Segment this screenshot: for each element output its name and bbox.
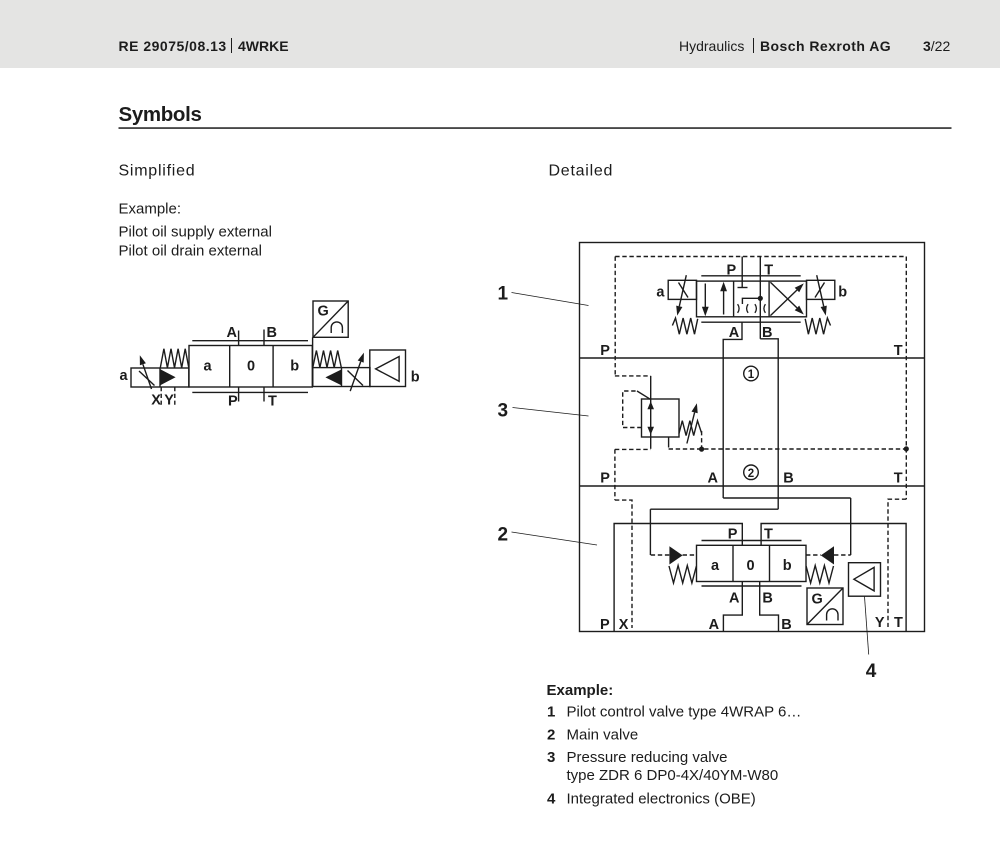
svg-text:Example:: Example: [547,682,614,699]
svg-text:2: 2 [748,468,754,480]
svg-text:0: 0 [247,359,255,375]
svg-text:P: P [600,471,610,487]
svg-text:P: P [727,263,737,279]
svg-text:Y: Y [164,393,174,409]
svg-text:b: b [290,359,299,375]
svg-text:Bosch Rexroth AG: Bosch Rexroth AG [760,38,891,54]
svg-text:X: X [151,393,161,409]
svg-text:1: 1 [498,284,509,305]
svg-text:T: T [268,394,277,410]
svg-text:b: b [411,370,420,386]
svg-text:a: a [711,558,720,574]
svg-text:3/22: 3/22 [923,38,950,54]
svg-text:A: A [729,325,740,341]
svg-text:a: a [656,285,665,301]
svg-text:P: P [728,527,738,543]
svg-text:A: A [729,591,740,607]
svg-text:G: G [318,304,329,320]
svg-text:4: 4 [547,791,556,808]
svg-text:2: 2 [498,525,509,546]
svg-text:P: P [228,394,238,410]
svg-text:a: a [204,359,213,375]
svg-text:B: B [762,591,772,607]
svg-text:T: T [894,615,903,631]
svg-text:T: T [894,471,903,487]
svg-text:Detailed: Detailed [549,163,614,180]
svg-text:A: A [709,617,720,633]
svg-text:T: T [894,343,903,359]
svg-text:1: 1 [547,704,555,721]
svg-text:Y: Y [875,615,885,631]
svg-text:Pilot oil drain external: Pilot oil drain external [119,243,262,260]
svg-text:A: A [227,325,238,341]
svg-text:T: T [764,527,773,543]
svg-text:G: G [812,592,823,608]
svg-text:B: B [781,617,791,633]
svg-text:Integrated electronics (OBE): Integrated electronics (OBE) [567,791,756,808]
svg-text:RE 29075/08.13: RE 29075/08.13 [119,38,227,54]
svg-text:B: B [762,325,772,341]
svg-text:B: B [783,471,793,487]
svg-text:Example:: Example: [119,201,182,218]
svg-text:3: 3 [498,401,509,422]
svg-text:b: b [783,558,792,574]
svg-text:P: P [600,617,610,633]
svg-text:T: T [764,263,773,279]
svg-text:b: b [838,285,847,301]
svg-text:type ZDR 6 DP0-4X/40YM-W80: type ZDR 6 DP0-4X/40YM-W80 [567,767,779,784]
svg-text:Symbols: Symbols [119,103,202,126]
svg-text:Pressure reducing valve: Pressure reducing valve [567,749,728,766]
svg-text:4WRKE: 4WRKE [238,38,289,54]
svg-text:Main valve: Main valve [567,727,639,744]
svg-text:0: 0 [747,558,755,574]
svg-text:2: 2 [547,727,555,744]
svg-text:4: 4 [866,661,877,682]
svg-text:Pilot control valve type 4WRAP: Pilot control valve type 4WRAP 6… [567,704,802,721]
svg-text:Hydraulics: Hydraulics [679,38,744,54]
svg-text:A: A [708,471,719,487]
svg-text:Pilot oil supply external: Pilot oil supply external [119,224,272,241]
svg-text:Simplified: Simplified [119,163,196,180]
svg-text:a: a [120,368,129,384]
svg-text:P: P [600,343,610,359]
svg-text:B: B [267,325,277,341]
svg-text:3: 3 [547,749,555,766]
svg-text:X: X [619,617,629,633]
svg-text:1: 1 [748,369,755,381]
